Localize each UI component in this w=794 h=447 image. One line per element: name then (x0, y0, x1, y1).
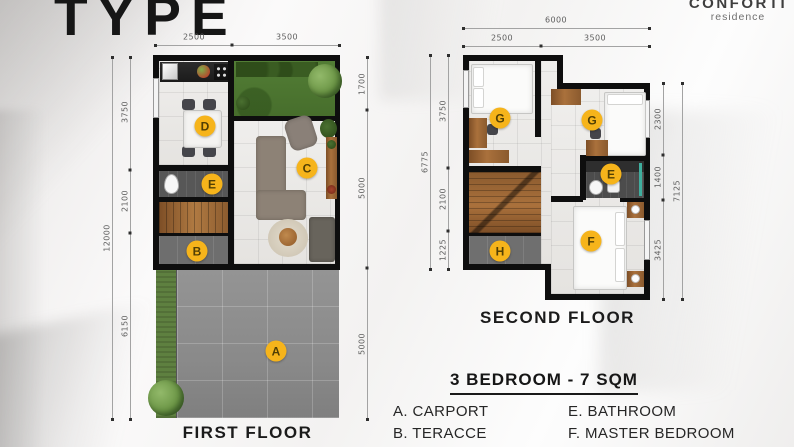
room-marker-carport: A (266, 341, 287, 362)
room-marker-bathroom: E (202, 174, 223, 195)
dim-label: 6775 (421, 151, 430, 173)
dim-tick (366, 267, 369, 270)
wardrobe (469, 150, 509, 163)
wardrobe (551, 89, 581, 105)
desk (469, 118, 487, 148)
dim-label: 12000 (103, 224, 112, 251)
yard-tree (148, 380, 184, 416)
legend-item: F. MASTER BEDROOM (568, 423, 735, 445)
dim-label: 5000 (358, 177, 367, 199)
page-title: TYPE (54, 0, 238, 48)
desk (586, 140, 608, 156)
fruit-bowl (197, 65, 210, 78)
dim-tick (447, 167, 450, 170)
garden-hedge (236, 62, 318, 77)
toilet (164, 174, 179, 194)
dim-tick (662, 154, 665, 157)
window (644, 220, 650, 260)
plant (327, 140, 336, 149)
marble-vein (0, 110, 45, 447)
wall (551, 196, 583, 202)
dim-label: 5000 (358, 333, 367, 355)
pillow (473, 67, 484, 87)
room-marker-master: F (581, 231, 602, 252)
pillow (615, 248, 625, 282)
first-floor-caption: FIRST FLOOR (155, 423, 340, 443)
dim-label: 2300 (654, 108, 663, 130)
plant (320, 119, 337, 138)
dim-line (155, 45, 340, 46)
room-marker-terrace: B (187, 241, 208, 262)
slide: TYPE CONFORTI residence 2500 3500 12000 … (0, 0, 794, 447)
window (153, 78, 159, 118)
dim-label: 1700 (358, 73, 367, 95)
dim-label: 2500 (183, 33, 205, 42)
dim-tick (447, 230, 450, 233)
stairs (469, 172, 541, 233)
pillow (615, 212, 625, 246)
garden-tree (308, 64, 342, 98)
dim-label: 3425 (654, 239, 663, 261)
dim-line (463, 28, 650, 29)
dim-label: 7125 (673, 180, 682, 202)
dim-label: 6150 (121, 315, 130, 337)
pillow (607, 94, 643, 105)
legend-item: B. TERACCE (393, 423, 487, 445)
sofa (256, 190, 306, 220)
dim-tick (540, 45, 543, 48)
dim-label: 2100 (439, 188, 448, 210)
dining-chair (203, 99, 216, 110)
dim-label: 1400 (654, 166, 663, 188)
second-floor-caption: SECOND FLOOR (465, 308, 650, 328)
wall (535, 61, 541, 137)
lamp (631, 274, 640, 283)
legend-item: A. CARPORT (393, 401, 488, 423)
dim-tick (231, 44, 234, 47)
dining-chair (182, 99, 195, 110)
dim-line (130, 57, 131, 420)
toilet (589, 180, 603, 195)
brand-tagline: residence (688, 11, 788, 23)
dim-line (663, 83, 664, 300)
pillow (473, 88, 484, 108)
room-marker-kids-left: G (490, 108, 511, 129)
brand-logo: CONFORTI residence (688, 0, 788, 23)
room-marker-kids-right: G (582, 110, 603, 131)
dim-line (430, 55, 431, 270)
dim-label: 6000 (545, 16, 567, 25)
coffee-table (279, 228, 297, 246)
legend-heading: 3 BEDROOM - 7 SQM (450, 370, 638, 395)
shower-glass (639, 163, 642, 196)
dim-label: 3750 (121, 101, 130, 123)
dim-label: 3750 (439, 100, 448, 122)
room-marker-hall: H (490, 241, 511, 262)
plant (327, 185, 336, 194)
room-marker-dining: D (195, 116, 216, 137)
dim-tick (129, 232, 132, 235)
legend-item: E. BATHROOM (568, 401, 676, 423)
dim-line (463, 46, 650, 47)
dim-line (448, 55, 449, 270)
carport-floor (176, 270, 339, 418)
dim-line (682, 83, 683, 300)
room-marker-living: C (297, 158, 318, 179)
dim-label: 2100 (121, 190, 130, 212)
dim-line (112, 57, 113, 420)
room-marker-bathroom: E (601, 164, 622, 185)
cooktop (214, 64, 229, 80)
lamp (631, 205, 640, 214)
stairs (159, 202, 230, 233)
fridge (162, 63, 178, 80)
garden-bush (236, 96, 250, 110)
dim-label: 3500 (584, 34, 606, 43)
dim-tick (366, 109, 369, 112)
dim-label: 1225 (439, 239, 448, 261)
dim-tick (129, 169, 132, 172)
window (463, 70, 469, 108)
bench-sofa (309, 217, 335, 262)
dim-label: 3500 (276, 33, 298, 42)
dim-label: 2500 (491, 34, 513, 43)
dim-tick (662, 199, 665, 202)
